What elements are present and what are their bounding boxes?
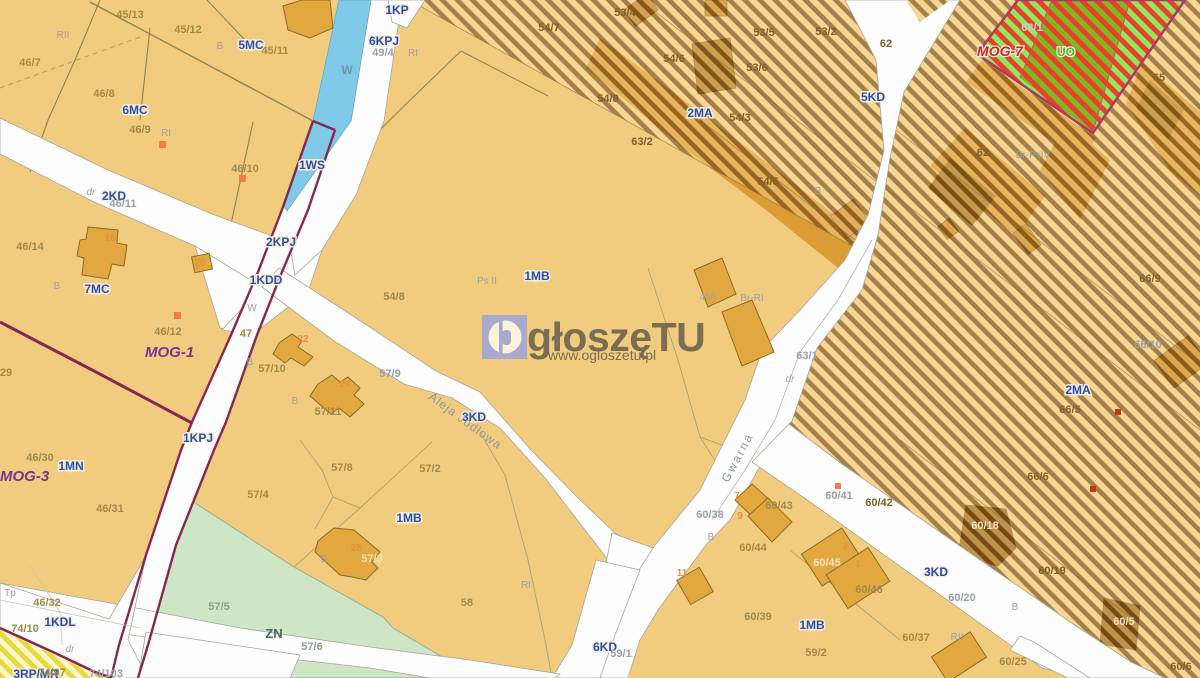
- svg-text:66/9: 66/9: [1139, 273, 1160, 285]
- svg-text:46/7: 46/7: [19, 57, 40, 69]
- svg-text:B: B: [217, 41, 224, 52]
- svg-text:Ps II: Ps II: [477, 276, 497, 287]
- svg-text:54/8: 54/8: [383, 291, 404, 303]
- svg-text:16: 16: [104, 233, 116, 244]
- svg-text:3: 3: [842, 541, 848, 552]
- svg-text:54/3: 54/3: [729, 112, 750, 124]
- svg-text:46/9: 46/9: [129, 124, 150, 136]
- svg-text:57/9: 57/9: [379, 368, 400, 380]
- svg-text:60/18: 60/18: [971, 520, 999, 532]
- svg-text:RI: RI: [408, 48, 418, 59]
- svg-text:B: B: [708, 532, 715, 543]
- svg-text:60/38: 60/38: [696, 509, 724, 521]
- svg-text:60/41: 60/41: [825, 490, 853, 502]
- svg-text:UO: UO: [1057, 45, 1075, 59]
- svg-text:57/6: 57/6: [301, 641, 322, 653]
- svg-text:RI: RI: [521, 580, 531, 591]
- svg-text:53/4: 53/4: [614, 7, 636, 19]
- svg-text:54/6: 54/6: [663, 53, 684, 65]
- svg-text:60/5: 60/5: [1113, 616, 1134, 628]
- svg-text:2KPJ: 2KPJ: [266, 235, 296, 249]
- svg-text:1WS: 1WS: [299, 158, 325, 172]
- svg-text:46/10: 46/10: [231, 163, 259, 175]
- svg-text:Tp: Tp: [4, 588, 16, 599]
- svg-text:66/10: 66/10: [1134, 339, 1162, 351]
- svg-text:49/4: 49/4: [372, 47, 394, 59]
- svg-text:54/5: 54/5: [757, 176, 778, 188]
- svg-text:MOG-1: MOG-1: [145, 344, 194, 361]
- svg-text:46/32: 46/32: [33, 597, 61, 609]
- svg-text:1: 1: [855, 559, 861, 570]
- svg-text:62: 62: [880, 38, 892, 50]
- svg-text:53/6: 53/6: [746, 62, 767, 74]
- svg-text:60/42: 60/42: [865, 497, 893, 509]
- svg-text:MOG-7: MOG-7: [977, 43, 1024, 59]
- svg-text:60/25: 60/25: [999, 656, 1027, 668]
- svg-text:dr: dr: [66, 644, 76, 655]
- svg-text:66/5: 66/5: [1059, 404, 1080, 416]
- svg-text:74/10: 74/10: [11, 623, 39, 635]
- svg-text:20: 20: [194, 258, 206, 269]
- svg-text:68/1: 68/1: [1021, 22, 1042, 34]
- svg-text:Br-RI: Br-RI: [740, 293, 763, 304]
- svg-text:24: 24: [339, 379, 351, 390]
- svg-text:60/44: 60/44: [739, 542, 767, 554]
- svg-text:63/1: 63/1: [796, 350, 817, 362]
- svg-text:RII: RII: [951, 632, 964, 643]
- svg-text:45/13: 45/13: [116, 9, 144, 21]
- svg-text:74/103: 74/103: [89, 668, 123, 678]
- svg-text:62: 62: [977, 147, 989, 159]
- svg-text:1MN: 1MN: [58, 459, 83, 473]
- svg-text:W: W: [341, 63, 353, 77]
- svg-text:7MC: 7MC: [84, 282, 110, 296]
- svg-text:46/31: 46/31: [96, 503, 124, 515]
- svg-text:1KP: 1KP: [385, 3, 408, 17]
- svg-text:54/7: 54/7: [538, 22, 559, 34]
- svg-text:29: 29: [0, 367, 12, 379]
- svg-text:57/10: 57/10: [258, 363, 286, 375]
- svg-text:60/37: 60/37: [902, 632, 930, 644]
- svg-text:46/14: 46/14: [16, 241, 44, 253]
- svg-text:59/1: 59/1: [610, 648, 631, 660]
- svg-text:60/6: 60/6: [1170, 661, 1191, 673]
- svg-text:58: 58: [461, 597, 473, 609]
- svg-text:60/39: 60/39: [744, 611, 772, 623]
- svg-text:60/46: 60/46: [855, 584, 883, 596]
- svg-text:1MB: 1MB: [799, 618, 825, 632]
- svg-text:1KDD: 1KDD: [250, 273, 283, 287]
- svg-text:28: 28: [350, 543, 362, 554]
- svg-text:ZN: ZN: [265, 626, 282, 641]
- svg-text:11: 11: [677, 568, 688, 579]
- svg-text:6MC: 6MC: [122, 103, 148, 117]
- svg-text:45/11: 45/11: [262, 45, 289, 57]
- svg-text:1KPJ: 1KPJ: [183, 431, 213, 445]
- svg-text:MOG-3: MOG-3: [0, 468, 50, 485]
- svg-text:6KPJ: 6KPJ: [369, 34, 399, 48]
- svg-text:B: B: [815, 186, 822, 197]
- svg-text:45/12: 45/12: [174, 24, 202, 36]
- svg-text:7: 7: [734, 491, 740, 502]
- svg-text:46/30: 46/30: [26, 452, 54, 464]
- svg-text:1KDL: 1KDL: [44, 615, 75, 629]
- svg-text:Br-PsIV: Br-PsIV: [1016, 150, 1051, 161]
- svg-text:455: 455: [700, 292, 717, 303]
- svg-text:60/20: 60/20: [948, 592, 976, 604]
- svg-text:RI: RI: [161, 128, 171, 139]
- svg-text:B: B: [247, 357, 254, 368]
- svg-text:2MA: 2MA: [1065, 383, 1091, 397]
- svg-text:57/11: 57/11: [315, 406, 342, 418]
- svg-text:57/3: 57/3: [361, 553, 382, 565]
- svg-text:RII: RII: [57, 30, 70, 41]
- svg-text:2MA: 2MA: [687, 106, 713, 120]
- svg-text:60/19: 60/19: [1038, 565, 1066, 577]
- svg-text:W: W: [247, 303, 257, 314]
- svg-text:60/43: 60/43: [765, 500, 793, 512]
- svg-text:www.ogloszetu.pl: www.ogloszetu.pl: [547, 347, 656, 363]
- svg-text:63/2: 63/2: [631, 136, 652, 148]
- svg-text:5MC: 5MC: [238, 38, 264, 52]
- svg-text:dr: dr: [786, 374, 796, 385]
- svg-text:22: 22: [297, 334, 309, 345]
- svg-text:dr: dr: [87, 187, 97, 198]
- svg-text:B: B: [321, 554, 328, 565]
- svg-text:60/45: 60/45: [813, 557, 841, 569]
- svg-text:53/5: 53/5: [753, 27, 774, 39]
- svg-text:66/6: 66/6: [1027, 471, 1048, 483]
- svg-text:5KD: 5KD: [861, 90, 885, 104]
- svg-text:3KD: 3KD: [924, 565, 948, 579]
- svg-text:B: B: [54, 281, 61, 292]
- svg-text:74/97: 74/97: [38, 667, 66, 678]
- svg-text:B: B: [1012, 602, 1019, 613]
- svg-text:65: 65: [1153, 72, 1165, 84]
- svg-text:57/5: 57/5: [208, 601, 229, 613]
- svg-text:46/12: 46/12: [154, 326, 182, 338]
- svg-text:57/2: 57/2: [419, 463, 440, 475]
- svg-text:1MB: 1MB: [396, 511, 422, 525]
- svg-text:46/8: 46/8: [93, 88, 114, 100]
- svg-text:53/2: 53/2: [815, 26, 836, 38]
- svg-text:57/8: 57/8: [331, 462, 352, 474]
- svg-text:54/8: 54/8: [597, 93, 618, 105]
- svg-text:59/2: 59/2: [805, 647, 826, 659]
- svg-text:46/11: 46/11: [110, 198, 137, 210]
- svg-text:1MB: 1MB: [524, 269, 550, 283]
- svg-text:B: B: [292, 396, 299, 407]
- svg-text:57/4: 57/4: [247, 489, 269, 501]
- svg-text:9: 9: [737, 511, 743, 522]
- svg-text:47: 47: [240, 328, 252, 340]
